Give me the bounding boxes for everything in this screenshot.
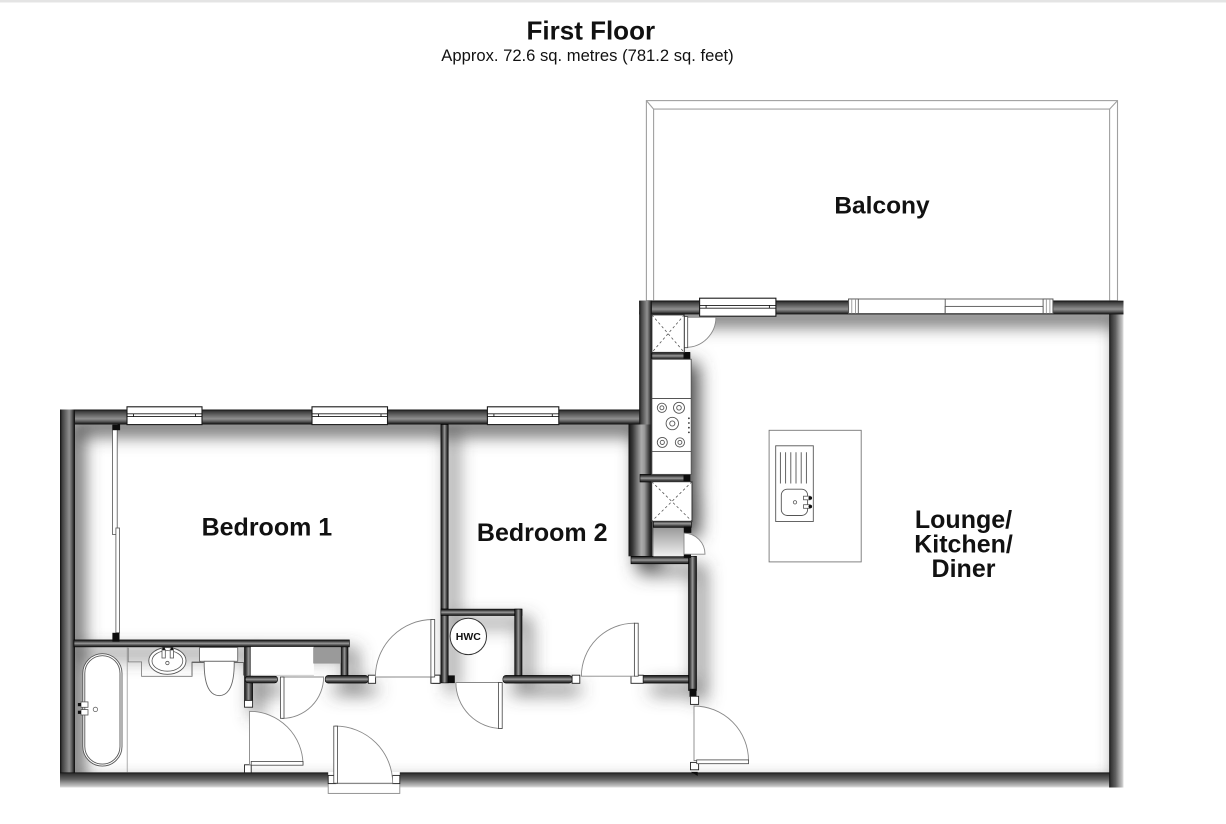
svg-text:Approx. 72.6 sq. metres (781.2: Approx. 72.6 sq. metres (781.2 sq. feet)	[441, 46, 733, 65]
svg-text:HWC: HWC	[456, 631, 481, 643]
svg-text:Balcony: Balcony	[834, 193, 930, 220]
svg-text:First Floor: First Floor	[527, 15, 656, 45]
svg-text:Diner: Diner	[932, 555, 996, 583]
svg-text:Bedroom 1: Bedroom 1	[202, 514, 333, 542]
svg-text:Bedroom 2: Bedroom 2	[477, 519, 608, 547]
